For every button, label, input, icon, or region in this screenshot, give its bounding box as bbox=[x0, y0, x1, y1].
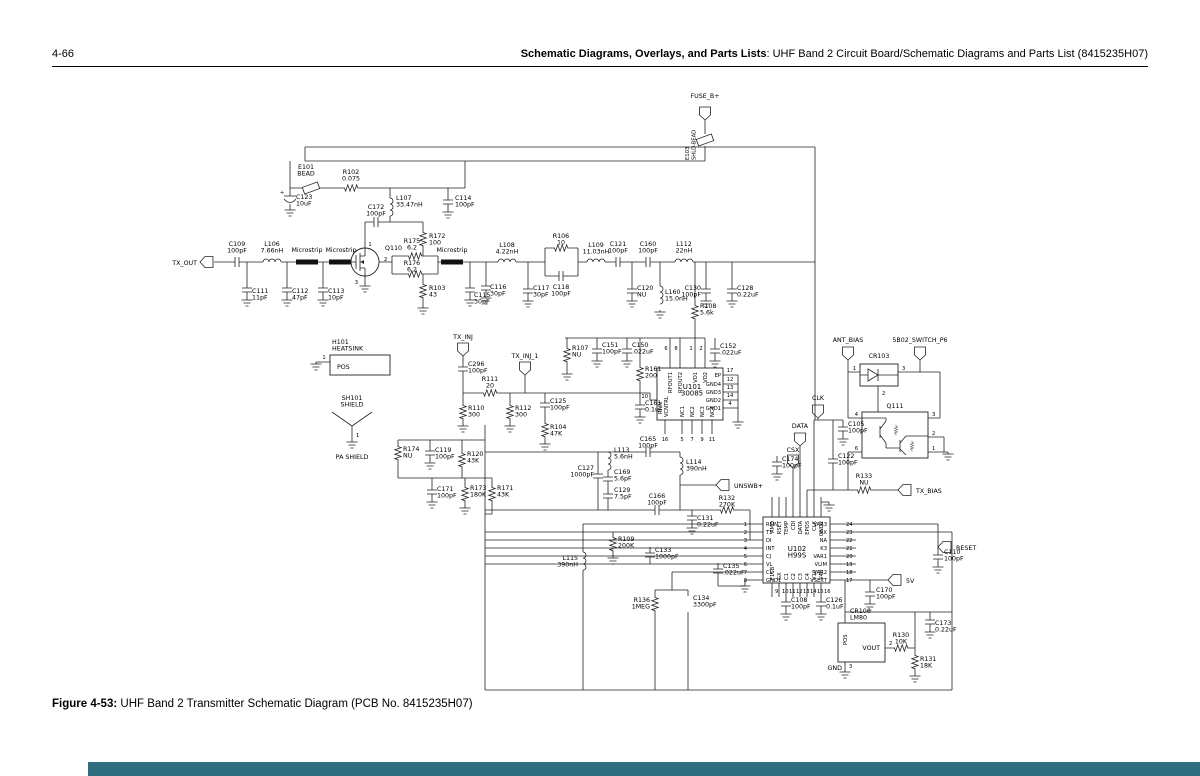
resistor-symbol bbox=[459, 450, 465, 470]
capacitor-symbol bbox=[645, 547, 655, 563]
label-u102-rn20: 20 bbox=[846, 554, 853, 560]
mosfet-arrow bbox=[361, 260, 365, 264]
label-u102-ln6: 6 bbox=[744, 562, 747, 568]
label-c129: C1297.5pF bbox=[614, 487, 632, 501]
label-clk: CLK bbox=[812, 395, 825, 402]
label-sh101-n1: 1 bbox=[356, 433, 359, 439]
resistor-symbol bbox=[854, 487, 874, 493]
label-u102-cdi: CDI bbox=[791, 521, 797, 531]
resistor-symbol bbox=[912, 652, 918, 672]
polarized-cap-plate bbox=[284, 199, 296, 203]
label-u102-rn23: 23 bbox=[846, 530, 853, 536]
label-c105: C105100pF bbox=[848, 421, 868, 435]
label-u101: U10130085 bbox=[681, 383, 703, 398]
label-u101-n1: 1 bbox=[689, 346, 692, 352]
capacitor-symbol bbox=[523, 283, 533, 299]
label-u102-cj: CJ bbox=[766, 554, 772, 560]
label-c173: C1730.22uF bbox=[935, 620, 957, 634]
label-c133: C1331000pF bbox=[655, 547, 679, 561]
capacitor-symbol bbox=[640, 257, 656, 267]
capacitor-symbol bbox=[701, 283, 711, 299]
label-h101: H101HEATSINK bbox=[332, 339, 364, 353]
label-u102-bn11: 11 bbox=[789, 589, 796, 595]
label-cr106: CR106LM80 bbox=[850, 608, 871, 622]
label-r102: R1020.075 bbox=[342, 169, 360, 183]
label-u101-n7: 7 bbox=[690, 437, 693, 443]
label-c130: C130100pF bbox=[681, 285, 701, 299]
label-tx-out: TX_OUT bbox=[171, 260, 197, 267]
label-u102-v10: V10 bbox=[812, 570, 818, 580]
label-e103: E103SHLD-BEAD bbox=[685, 130, 698, 160]
label-cr103-n3: 3 bbox=[902, 366, 905, 372]
label-tx-bias: TX_BIAS bbox=[915, 488, 942, 495]
resistor-symbol bbox=[341, 185, 361, 191]
label-l107: L10733.47nH bbox=[396, 195, 423, 209]
label-c174: C174100pF bbox=[782, 456, 802, 470]
label-q111-n1: 1 bbox=[932, 446, 935, 452]
capacitor-symbol bbox=[772, 456, 782, 472]
capacitor-symbol bbox=[427, 484, 437, 500]
label-c116: C11630pF bbox=[490, 284, 506, 298]
label-c109: C109100pF bbox=[227, 241, 247, 255]
label-u102-c1: C1 bbox=[784, 573, 790, 580]
label-q111-n3: 3 bbox=[932, 412, 935, 418]
label-sh101: SH101SHIELD bbox=[341, 395, 364, 409]
label-u102-bn13: 13 bbox=[803, 589, 810, 595]
ground-symbols bbox=[242, 208, 954, 682]
label-u102-bn16: 16 bbox=[824, 589, 831, 595]
label-u102-bn9: 9 bbox=[775, 589, 778, 595]
connector-tx-inj-1 bbox=[520, 362, 531, 375]
label-c135: C135.022uF bbox=[723, 563, 745, 577]
label-u102-na: NA bbox=[820, 538, 828, 544]
capacitor-symbol bbox=[865, 586, 875, 602]
label-r171: R17143K bbox=[497, 485, 513, 499]
resistor-symbol bbox=[460, 402, 466, 422]
resistor-symbol bbox=[637, 364, 643, 384]
label-r130: R13010K bbox=[893, 632, 909, 646]
label-u102-rn22: 22 bbox=[846, 538, 853, 544]
resistor-symbol bbox=[489, 484, 495, 504]
label-u102-ln8: 8 bbox=[744, 578, 747, 584]
label-q110: Q110 bbox=[385, 245, 402, 252]
label-u102-rn18: 18 bbox=[846, 570, 853, 576]
label-u101-n5: 5 bbox=[680, 437, 683, 443]
label-c117: C11730pF bbox=[533, 285, 549, 299]
label-c152: C152.022uF bbox=[720, 343, 742, 357]
label-r175: R1756.2 bbox=[404, 238, 420, 252]
label-q111-n2: 2 bbox=[932, 431, 935, 437]
label-u102-rset: RSET bbox=[777, 520, 783, 534]
label-u102-ln3: 3 bbox=[744, 538, 747, 544]
label-u101-n13: 13 bbox=[727, 385, 734, 391]
capacitor-symbol bbox=[603, 471, 613, 487]
label-cr106-n3: 3 bbox=[849, 664, 852, 670]
resistor-symbol bbox=[420, 229, 426, 249]
capacitor-symbol bbox=[593, 468, 603, 484]
capacitor-symbol bbox=[781, 596, 791, 612]
label-c171: C171100pF bbox=[437, 486, 457, 500]
label-u101-nc2: NC2 bbox=[690, 406, 696, 417]
label-c134: C1343300pF bbox=[693, 595, 717, 609]
inductor-symbol bbox=[583, 552, 586, 570]
label-u102-k3: K3 bbox=[820, 546, 827, 552]
capacitor-symbol bbox=[458, 361, 468, 377]
label-u102-ln7: 7 bbox=[744, 570, 747, 576]
capacitor-symbol bbox=[425, 445, 435, 461]
label-u101-n10: 10 bbox=[641, 394, 648, 400]
label-u102-ln4: 4 bbox=[744, 546, 748, 552]
connector-5b02-switch bbox=[915, 347, 926, 360]
connector-fuse-b-plus bbox=[700, 107, 711, 120]
manual-page: 4-66 Schematic Diagrams, Overlays, and P… bbox=[0, 0, 1200, 776]
label-r112: R112300 bbox=[515, 405, 531, 419]
label-r108: R1085.6k bbox=[700, 303, 716, 317]
label-u101-vcntrl: VCNTRL bbox=[664, 396, 670, 417]
label-u101-n8: 8 bbox=[674, 346, 677, 352]
label-u101-n2: 2 bbox=[699, 346, 702, 352]
label-u102-f16b: F16B bbox=[770, 566, 776, 580]
label-r111: R11120 bbox=[482, 376, 498, 390]
label-c114: C114100pF bbox=[455, 195, 475, 209]
label-u102-c2: C2 bbox=[791, 573, 797, 580]
label-sb02-switch-p6: 5B02_SWITCH_P6 bbox=[892, 337, 947, 344]
figure-caption: Figure 4-53: UHF Band 2 Transmitter Sche… bbox=[52, 698, 473, 710]
label-u101-gnd3: GND3 bbox=[706, 390, 721, 396]
label-r103: R10343 bbox=[429, 285, 445, 299]
resistor-symbol bbox=[891, 645, 911, 651]
label-l114: L114390nH bbox=[686, 459, 707, 473]
label-u102-v4b: V4B bbox=[819, 569, 825, 580]
label-r120: R12043K bbox=[467, 451, 483, 465]
label-u102-bn12: 12 bbox=[796, 589, 803, 595]
label-c127: C1271000pF bbox=[570, 465, 594, 479]
microstrip-bar bbox=[329, 260, 351, 265]
capacitor-symbol bbox=[282, 282, 292, 298]
label-cr103-n2: 2 bbox=[882, 391, 885, 397]
figure-caption-bold: Figure 4-53: bbox=[52, 698, 117, 710]
label-c125: C125100pF bbox=[550, 398, 570, 412]
capacitor-symbol bbox=[925, 614, 935, 630]
label-c131: C1310.22uF bbox=[697, 515, 719, 529]
connector-data bbox=[795, 433, 806, 446]
inductor-symbol bbox=[263, 259, 281, 262]
label-u102-ln1: 1 bbox=[744, 522, 747, 528]
diode-cr103-leads bbox=[860, 369, 898, 381]
label-r132: R132270K bbox=[719, 495, 736, 509]
label-r172: R172100 bbox=[429, 233, 445, 247]
label-c160: C160100pF bbox=[638, 241, 658, 255]
capacitor-symbol bbox=[622, 343, 632, 359]
label-cr106-gnd: GND bbox=[828, 665, 843, 672]
label-u101-gnd2: GND2 bbox=[706, 398, 721, 404]
label-ms2: Microstrip bbox=[325, 247, 356, 254]
label-r174: R174NU bbox=[403, 446, 419, 460]
capacitor-symbol bbox=[816, 596, 826, 612]
capacitor-symbol bbox=[828, 453, 838, 469]
label-r110: R110300 bbox=[468, 405, 484, 419]
label-r107: R107NU bbox=[572, 345, 588, 359]
label-u102-bn15: 15 bbox=[817, 589, 824, 595]
label-u101-n4: 4 bbox=[728, 401, 732, 407]
label-c170: C170100pF bbox=[876, 587, 896, 601]
label-r161: R161200 bbox=[645, 366, 661, 380]
label-cr103: CR103 bbox=[869, 353, 890, 360]
label-cr106-n2: 2 bbox=[889, 641, 892, 647]
wire-u102-area bbox=[485, 420, 952, 690]
capacitor-symbol bbox=[603, 488, 613, 504]
resistor-symbol bbox=[652, 594, 658, 614]
inductor-symbol bbox=[390, 198, 393, 216]
label-u102-int: INT bbox=[766, 546, 775, 552]
label-c118: C118100pF bbox=[551, 284, 571, 298]
label-h101-n1: 1 bbox=[322, 355, 325, 361]
label-u102-ln2: 2 bbox=[744, 530, 747, 536]
resistor-symbol bbox=[462, 484, 468, 504]
inductor-symbol bbox=[587, 259, 605, 262]
inductor-symbol bbox=[498, 259, 516, 262]
label-5v: 5V bbox=[906, 578, 915, 585]
label-tx-inj-1: TX_INJ_1 bbox=[511, 353, 539, 360]
label-c111: C11111pF bbox=[252, 288, 268, 302]
connector-tx-inj bbox=[458, 343, 469, 356]
label-cr103-n1: 1 bbox=[853, 366, 856, 372]
label-u102-clk: CLK bbox=[812, 520, 818, 531]
transistor-q111-body bbox=[862, 412, 928, 458]
label-h101-pos: POS bbox=[337, 364, 350, 371]
label-l113: L1135.6nH bbox=[614, 447, 633, 461]
resistor-symbol bbox=[420, 281, 426, 301]
label-l109: L10911.03nH bbox=[583, 242, 610, 256]
resistor-symbol bbox=[692, 302, 698, 322]
resistor-symbol bbox=[405, 253, 425, 259]
label-c122: C122100pF bbox=[838, 453, 858, 467]
label-c123: C12310uF bbox=[296, 194, 312, 208]
label-c150: C150.022uF bbox=[632, 342, 654, 356]
figure-caption-rest: UHF Band 2 Transmitter Schematic Diagram… bbox=[117, 698, 472, 710]
inductor-symbol bbox=[680, 457, 683, 475]
capacitor-symbol bbox=[627, 283, 637, 299]
label-u102-data: DATA bbox=[798, 521, 804, 535]
label-u102-rn24: 24 bbox=[846, 522, 853, 528]
diode-triangle bbox=[868, 369, 878, 381]
label-c108: C108100pF bbox=[791, 597, 811, 611]
label-c112: C11247pF bbox=[292, 288, 308, 302]
capacitor-symbol bbox=[838, 421, 848, 437]
schematic: FUSE_B+E103SHLD-BEADTX_OUTTX_INJTX_INJ_1… bbox=[0, 0, 1200, 776]
label-u102-vlim: VLIM bbox=[815, 562, 827, 568]
label-u101-n14: 14 bbox=[727, 393, 734, 399]
label-u102-rn21: 21 bbox=[846, 546, 853, 552]
label-c166: C166100pF bbox=[647, 493, 667, 507]
connector-clk bbox=[813, 405, 824, 418]
label-u102-rn17: 17 bbox=[846, 578, 853, 584]
capacitor-symbol bbox=[610, 257, 626, 267]
label-c126: C1260.1uF bbox=[826, 597, 844, 611]
capacitor-symbol bbox=[318, 282, 328, 298]
label-q111-n6: 6 bbox=[855, 446, 858, 452]
label-csx: CSX bbox=[787, 447, 800, 454]
label-q110-p1: 1 bbox=[368, 242, 371, 248]
label-u101-n12: 12 bbox=[727, 377, 734, 383]
label-c296: C296100pF bbox=[468, 361, 488, 375]
connector-unswb bbox=[716, 480, 729, 491]
label-r173: R173180K bbox=[470, 485, 487, 499]
label-cr106-pos: POS bbox=[843, 634, 849, 645]
capacitor-symbol bbox=[592, 343, 602, 359]
capacitor-symbol bbox=[635, 399, 645, 415]
label-l108: L1084.22nH bbox=[496, 242, 519, 256]
label-e101: E101BEAD bbox=[297, 164, 315, 178]
label-c123-plus: + bbox=[280, 190, 284, 196]
label-u102-temp: TEMP bbox=[784, 521, 790, 536]
label-r109: R109200K bbox=[618, 536, 635, 550]
label-q110-p2: 2 bbox=[384, 257, 387, 263]
label-l115: L115390nH bbox=[557, 555, 578, 569]
label-u101-gnd4: GND4 bbox=[706, 382, 722, 388]
ferrite-bead-symbol bbox=[302, 182, 319, 194]
label-u102-rn19: 19 bbox=[846, 562, 853, 568]
label-ms3: Microstrip bbox=[436, 247, 467, 254]
label-u101-n17: 17 bbox=[727, 368, 734, 374]
label-u101-n9: 9 bbox=[700, 437, 703, 443]
label-u101-n6: 6 bbox=[664, 346, 667, 352]
label-r104: R10447K bbox=[550, 424, 566, 438]
label-c128: C1280.22uF bbox=[737, 285, 759, 299]
capacitor-symbol bbox=[229, 257, 245, 267]
label-u102-c4: C4 bbox=[805, 572, 811, 580]
footer-bar bbox=[88, 762, 1200, 776]
capacitor-symbol bbox=[710, 343, 720, 359]
label-c119: C119100pF bbox=[435, 447, 455, 461]
label-c120: C120NU bbox=[637, 285, 653, 299]
ferrite-bead-symbol bbox=[696, 134, 713, 146]
capacitor-symbol bbox=[553, 271, 569, 281]
label-ant-bias: ANT_BIAS bbox=[833, 337, 864, 344]
capacitor-symbol bbox=[242, 282, 252, 298]
label-l106: L1067.66nH bbox=[261, 241, 284, 255]
transistor-q111-internals bbox=[862, 418, 928, 455]
label-tx-inj: TX_INJ bbox=[452, 334, 473, 341]
label-c121: C121100pF bbox=[608, 241, 628, 255]
resistor-symbol bbox=[610, 534, 616, 554]
resistor-symbol bbox=[910, 441, 914, 452]
label-u101-vd1: VD1 bbox=[693, 372, 699, 383]
label-c172: C172100pF bbox=[366, 204, 386, 218]
connector-tx-bias bbox=[898, 485, 911, 496]
label-u101-gnd1: GND1 bbox=[706, 406, 721, 412]
label-c169: C1695.6pF bbox=[614, 469, 632, 483]
microstrip-bar bbox=[441, 260, 463, 265]
label-u102-bn10: 10 bbox=[782, 589, 789, 595]
label-c115: C11530pF bbox=[474, 292, 490, 306]
label-fuse-b-plus: FUSE_B+ bbox=[691, 93, 720, 100]
capacitor-symbol bbox=[727, 283, 737, 299]
label-c165: C165100pF bbox=[638, 436, 658, 450]
label-r136: R1361MEG bbox=[632, 597, 650, 611]
label-u101-rfout1: RFOUT1 bbox=[668, 372, 674, 393]
label-u102-di: DI bbox=[766, 538, 772, 544]
connector-tx-out bbox=[200, 257, 213, 268]
label-u102-c3: C3 bbox=[798, 573, 804, 580]
capacitor-symbol bbox=[368, 217, 384, 227]
connector-5v bbox=[888, 575, 901, 586]
label-u101-rfout2: RFOUT2 bbox=[678, 372, 684, 393]
capacitor-symbol bbox=[540, 397, 550, 413]
microstrip-bar bbox=[296, 260, 318, 265]
schematic-labels: FUSE_B+E103SHLD-BEADTX_OUTTX_INJTX_INJ_1… bbox=[171, 93, 976, 672]
label-cr106-vout: VOUT bbox=[862, 645, 880, 652]
label-u101-ep: EP bbox=[715, 373, 721, 379]
label-u101-n11: 11 bbox=[709, 437, 716, 443]
inductor-symbol bbox=[660, 286, 663, 304]
label-r131: R13118K bbox=[920, 656, 936, 670]
label-pa-shield: PA SHIELD bbox=[336, 454, 369, 461]
label-unswb-plus: UNSWB+ bbox=[734, 483, 763, 490]
connector-ant-bias bbox=[843, 347, 854, 360]
resistor-symbol bbox=[480, 390, 500, 396]
label-c151: C151100pF bbox=[602, 342, 622, 356]
inductor-symbol bbox=[675, 259, 693, 262]
label-u102-amo: AMO bbox=[770, 521, 776, 533]
resistor-symbol bbox=[542, 420, 548, 440]
label-c113: C11310pF bbox=[328, 288, 344, 302]
symbols-layer bbox=[200, 107, 951, 672]
label-u101-nc1: NC1 bbox=[680, 406, 686, 417]
label-u102-gnd2: GND2 bbox=[819, 521, 825, 536]
label-u102-gx: GX bbox=[777, 572, 783, 580]
resistor-symbol bbox=[507, 402, 513, 422]
label-r133: R133NU bbox=[856, 473, 872, 487]
label-r176: R1766.2 bbox=[404, 260, 420, 274]
label-q111-n4: 4 bbox=[855, 412, 859, 418]
label-l112: L11222nH bbox=[676, 241, 693, 255]
label-ms1: Microstrip bbox=[291, 247, 322, 254]
capacitor-symbol bbox=[443, 194, 453, 210]
label-u101-n16: 16 bbox=[662, 437, 669, 443]
label-u102: U102H99S bbox=[788, 545, 807, 560]
label-u102-var1: VAR1 bbox=[813, 554, 827, 560]
resistor-symbol bbox=[894, 425, 898, 436]
label-data: DATA bbox=[792, 423, 809, 430]
resistor-symbol bbox=[564, 345, 570, 365]
label-q111: Q111 bbox=[887, 403, 904, 410]
label-u102-ln5: 5 bbox=[744, 554, 747, 560]
resistor-symbol bbox=[395, 443, 401, 463]
inductor-symbol bbox=[608, 452, 611, 470]
capacitor-symbol bbox=[713, 563, 723, 579]
label-u102-epos: EPOS bbox=[805, 521, 811, 535]
label-q110-p3: 3 bbox=[355, 280, 358, 286]
